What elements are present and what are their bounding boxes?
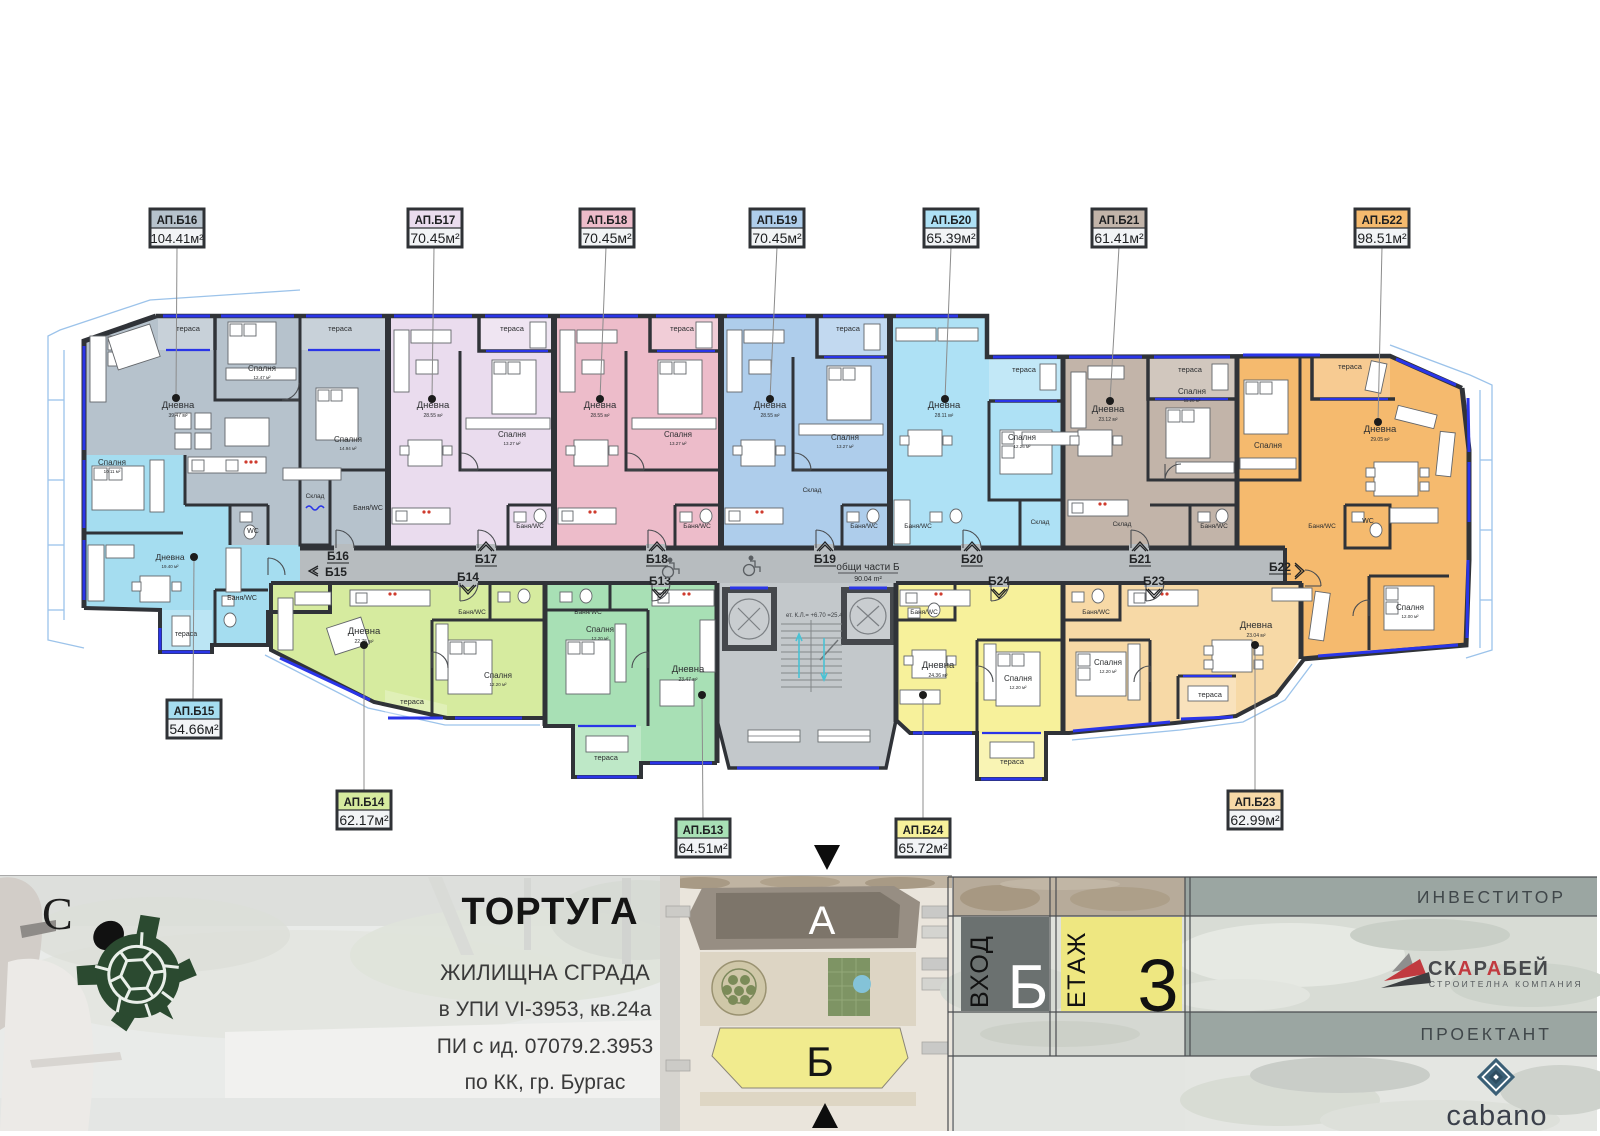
svg-text:тераса: тераса	[1338, 362, 1363, 371]
svg-text:Дневна: Дневна	[1240, 620, 1273, 631]
svg-text:Спалня: Спалня	[98, 458, 126, 467]
svg-text:Спалня: Спалня	[1254, 441, 1282, 450]
svg-text:19.40 м²: 19.40 м²	[161, 564, 179, 569]
svg-text:Дневна: Дневна	[162, 400, 195, 411]
svg-text:11.20 м²: 11.20 м²	[1184, 398, 1201, 403]
svg-text:ет. К.Л.= +6.70 =25.4: ет. К.Л.= +6.70 =25.4	[786, 613, 843, 619]
svg-text:Б18: Б18	[646, 552, 668, 566]
svg-text:28.11 м²: 28.11 м²	[935, 413, 954, 419]
svg-text:70.45м²: 70.45м²	[410, 230, 460, 246]
svg-text:Баня/WC: Баня/WC	[850, 523, 878, 530]
svg-text:Дневна: Дневна	[672, 664, 705, 675]
svg-text:28.55 м²: 28.55 м²	[590, 413, 609, 419]
svg-text:104.41м²: 104.41м²	[150, 231, 204, 246]
svg-text:Баня/WC: Баня/WC	[574, 609, 602, 616]
svg-text:Б21: Б21	[1129, 552, 1151, 566]
svg-text:Б22: Б22	[1269, 560, 1291, 574]
svg-text:Б: Б	[1008, 953, 1049, 1022]
svg-text:А: А	[809, 899, 836, 943]
svg-text:10.11 м²: 10.11 м²	[104, 469, 121, 474]
svg-text:12.47 м²: 12.47 м²	[253, 375, 271, 380]
svg-text:3: 3	[1137, 944, 1178, 1027]
svg-text:ИНВЕСТИТОР: ИНВЕСТИТОР	[1417, 887, 1566, 907]
svg-text:С: С	[42, 888, 73, 939]
svg-text:тераса: тераса	[1000, 757, 1025, 766]
svg-text:65.39м²: 65.39м²	[926, 230, 976, 246]
svg-text:64.51м²: 64.51м²	[678, 840, 728, 856]
svg-text:Дневна: Дневна	[1364, 424, 1397, 435]
svg-text:62.17м²: 62.17м²	[339, 812, 389, 828]
svg-text:13.27 м²: 13.27 м²	[669, 441, 687, 446]
svg-text:Спалня: Спалня	[498, 430, 526, 439]
svg-text:Б15: Б15	[325, 565, 347, 579]
svg-text:Б17: Б17	[475, 552, 497, 566]
svg-text:23.47 м²: 23.47 м²	[678, 677, 697, 683]
svg-text:АП.Б15: АП.Б15	[174, 706, 215, 718]
svg-text:90.04 m²: 90.04 m²	[854, 576, 882, 583]
svg-text:тераса: тераса	[670, 324, 695, 333]
svg-text:тераса: тераса	[1012, 365, 1037, 374]
svg-text:АП.Б20: АП.Б20	[931, 215, 972, 227]
svg-text:Склад: Склад	[1031, 519, 1050, 526]
svg-text:14.94 м²: 14.94 м²	[339, 446, 357, 451]
svg-text:Склад: Склад	[306, 493, 325, 500]
svg-text:Баня/WC: Баня/WC	[1082, 609, 1110, 616]
svg-text:24.36 м²: 24.36 м²	[928, 673, 947, 679]
svg-text:Б13: Б13	[649, 574, 671, 588]
svg-text:Баня/WC: Баня/WC	[904, 523, 932, 530]
svg-text:98.51м²: 98.51м²	[1357, 230, 1407, 246]
svg-text:ПРОЕКТАНТ: ПРОЕКТАНТ	[1421, 1024, 1552, 1044]
svg-text:АП.Б24: АП.Б24	[903, 825, 944, 837]
svg-text:28.55 м²: 28.55 м²	[423, 413, 442, 419]
svg-text:АП.Б16: АП.Б16	[157, 215, 198, 227]
svg-text:39.47 м²: 39.47 м²	[168, 413, 187, 419]
svg-text:АП.Б19: АП.Б19	[757, 215, 798, 227]
svg-text:62.99м²: 62.99м²	[1230, 812, 1280, 828]
svg-text:70.45м²: 70.45м²	[582, 230, 632, 246]
svg-text:13.27 м²: 13.27 м²	[503, 441, 521, 446]
svg-text:в УПИ VI-3953, кв.24а: в УПИ VI-3953, кв.24а	[439, 998, 652, 1021]
svg-text:Спалня: Спалня	[1008, 433, 1036, 442]
svg-text:12.20 м²: 12.20 м²	[1009, 685, 1027, 690]
svg-text:Баня/WC: Баня/WC	[683, 523, 711, 530]
svg-text:Б: Б	[806, 1038, 834, 1085]
svg-text:12.20 м²: 12.20 м²	[1099, 669, 1117, 674]
svg-text:АП.Б13: АП.Б13	[683, 825, 724, 837]
svg-text:Дневна: Дневна	[155, 552, 184, 562]
svg-text:ПИ с ид. 07079.2.3953: ПИ с ид. 07079.2.3953	[437, 1035, 653, 1058]
svg-text:тераса: тераса	[328, 324, 353, 333]
svg-text:Б16: Б16	[327, 549, 349, 563]
svg-text:ЖИЛИЩНА СГРАДА: ЖИЛИЩНА СГРАДА	[440, 960, 650, 985]
svg-text:СТРОИТЕЛНА КОМПАНИЯ: СТРОИТЕЛНА КОМПАНИЯ	[1429, 979, 1583, 989]
svg-text:тераса: тераса	[500, 324, 525, 333]
svg-text:Спалня: Спалня	[831, 433, 859, 442]
svg-text:Спалня: Спалня	[586, 625, 614, 634]
svg-text:тераса: тераса	[400, 697, 425, 706]
svg-text:Склад: Склад	[803, 487, 822, 494]
svg-text:Б19: Б19	[814, 552, 836, 566]
svg-text:Б14: Б14	[457, 570, 479, 584]
svg-text:Спалня: Спалня	[1396, 603, 1424, 612]
svg-text:Склад: Склад	[1113, 521, 1132, 528]
svg-text:Баня/WC: Баня/WC	[227, 595, 257, 602]
svg-text:WC: WC	[1362, 518, 1374, 525]
svg-text:54.66м²: 54.66м²	[169, 721, 219, 737]
svg-text:АП.Б22: АП.Б22	[1362, 215, 1403, 227]
svg-text:Спалня: Спалня	[334, 435, 362, 444]
svg-text:тераса: тераса	[836, 324, 861, 333]
svg-text:12.20 м²: 12.20 м²	[489, 682, 507, 687]
svg-text:Баня/WC: Баня/WC	[353, 505, 383, 512]
svg-text:12.00 м²: 12.00 м²	[1401, 614, 1419, 619]
svg-text:тераса: тераса	[176, 324, 201, 333]
svg-text:ТОРТУГА: ТОРТУГА	[461, 891, 638, 933]
svg-text:65.72м²: 65.72м²	[898, 840, 948, 856]
svg-text:общи части Б: общи части Б	[836, 561, 900, 573]
svg-text:29.05 м²: 29.05 м²	[1370, 437, 1389, 443]
svg-text:28.55 м²: 28.55 м²	[760, 413, 779, 419]
svg-text:Дневна: Дневна	[922, 660, 955, 671]
svg-text:АП.Б17: АП.Б17	[415, 215, 456, 227]
svg-text:ВХОД: ВХОД	[966, 935, 994, 1008]
svg-text:Баня/WC: Баня/WC	[458, 609, 486, 616]
svg-text:Баня/WC: Баня/WC	[1200, 523, 1228, 530]
svg-text:Спалня: Спалня	[1178, 387, 1206, 396]
svg-text:тераса: тераса	[594, 753, 619, 762]
svg-text:70.45м²: 70.45м²	[752, 230, 802, 246]
svg-text:тераса: тераса	[1178, 365, 1203, 374]
svg-text:61.41м²: 61.41м²	[1094, 230, 1144, 246]
svg-text:12.20 м²: 12.20 м²	[591, 636, 609, 641]
svg-text:Спалня: Спалня	[1094, 658, 1122, 667]
svg-text:тераса: тераса	[1198, 690, 1223, 699]
svg-text:Спалня: Спалня	[1004, 674, 1032, 683]
svg-text:Спалня: Спалня	[664, 430, 692, 439]
svg-text:13.27 м²: 13.27 м²	[836, 444, 854, 449]
svg-text:Б20: Б20	[961, 552, 983, 566]
svg-text:Б24: Б24	[988, 574, 1010, 588]
svg-text:Б23: Б23	[1143, 574, 1165, 588]
svg-text:12.26 м²: 12.26 м²	[1013, 444, 1031, 449]
svg-text:АП.Б23: АП.Б23	[1235, 797, 1276, 809]
svg-text:Спалня: Спалня	[484, 671, 512, 680]
svg-text:АП.Б14: АП.Б14	[344, 797, 385, 809]
svg-text:АП.Б21: АП.Б21	[1099, 215, 1140, 227]
svg-text:23.04 м²: 23.04 м²	[1246, 633, 1265, 639]
svg-text:Баня/WC: Баня/WC	[910, 609, 938, 616]
svg-text:АП.Б18: АП.Б18	[587, 215, 628, 227]
svg-text:WC: WC	[247, 528, 259, 535]
svg-text:23.12 м²: 23.12 м²	[1098, 417, 1117, 423]
svg-text:Баня/WC: Баня/WC	[516, 523, 544, 530]
svg-text:Дневна: Дневна	[1092, 404, 1125, 415]
svg-text:Дневна: Дневна	[348, 626, 381, 637]
svg-text:cabano: cabano	[1446, 1100, 1547, 1131]
svg-text:по КК, гр. Бургас: по КК, гр. Бургас	[465, 1071, 626, 1094]
svg-text:Спалня: Спалня	[248, 364, 276, 373]
svg-text:Баня/WC: Баня/WC	[1308, 523, 1336, 530]
svg-text:СКАРАБЕЙ: СКАРАБЕЙ	[1428, 956, 1549, 980]
svg-text:ЕТАЖ: ЕТАЖ	[1063, 931, 1091, 1008]
